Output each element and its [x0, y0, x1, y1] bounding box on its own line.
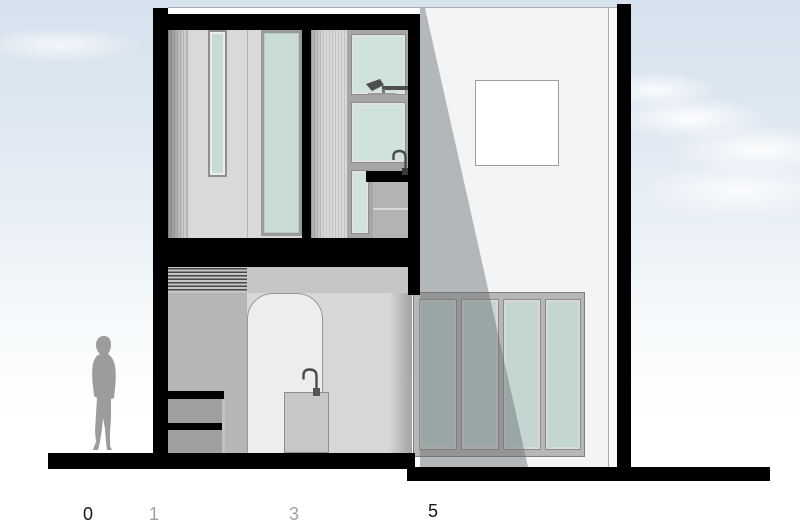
- kitchen-drawers: [168, 399, 225, 453]
- scale-label-3: 3: [284, 503, 304, 525]
- square-facade-window: [475, 80, 559, 166]
- wall-panel-seam: [247, 30, 248, 238]
- section-left-wall: [153, 8, 168, 453]
- facade-right-column: [617, 4, 631, 467]
- kitchen-faucet-icon: [298, 366, 324, 396]
- bath-spout-icon: [364, 78, 412, 98]
- section-right-wall: [408, 14, 420, 295]
- intermediate-floor-slab: [168, 238, 420, 267]
- ground-line-right: [407, 467, 770, 481]
- wall-panel-seam: [187, 30, 188, 238]
- tall-narrow-window: [208, 30, 227, 177]
- drawer-divider: [168, 423, 222, 430]
- glazing-pane: [545, 299, 581, 450]
- facade-edge-strip: [609, 7, 617, 468]
- ground-line-left: [48, 453, 415, 469]
- scale-label-5: 5: [423, 500, 443, 522]
- scale-label-0: 0: [78, 503, 98, 525]
- glass-door-panel: [261, 30, 302, 236]
- floor-beam-band: [168, 267, 408, 294]
- roof-slab: [168, 14, 420, 30]
- kitchen-countertop: [168, 391, 224, 399]
- bathroom-striped-wall: [311, 30, 347, 238]
- cabinet-drawer-seam: [373, 208, 410, 210]
- bathroom-cabinet: [373, 182, 410, 238]
- architectural-section-drawing: { "drawing": { "kind": "building cross-s…: [0, 0, 800, 530]
- interior-divider-wall: [302, 30, 311, 238]
- scale-label-1: 1: [144, 503, 164, 525]
- pedestal-sink: [284, 392, 329, 453]
- louver-vent: [168, 268, 247, 292]
- wall-corner-shading: [168, 30, 189, 238]
- person-figure: [84, 336, 124, 455]
